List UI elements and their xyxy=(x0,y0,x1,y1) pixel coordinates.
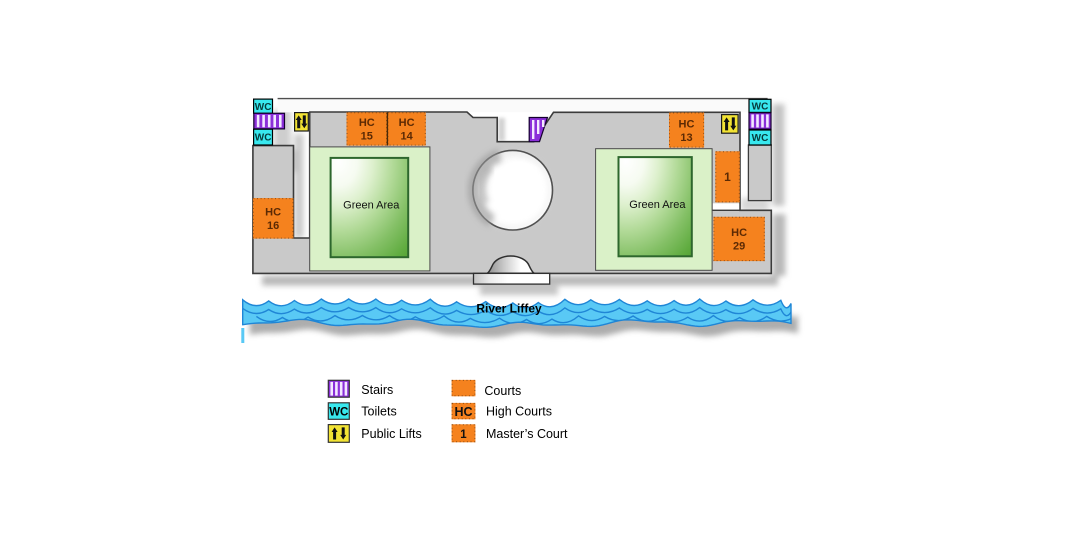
svg-text:14: 14 xyxy=(400,131,413,143)
svg-text:Master’s Court: Master’s Court xyxy=(486,427,568,441)
svg-text:1: 1 xyxy=(724,170,731,184)
svg-text:HC: HC xyxy=(359,117,375,129)
svg-text:HC: HC xyxy=(399,117,415,129)
svg-text:16: 16 xyxy=(267,220,279,232)
svg-text:1: 1 xyxy=(460,429,467,441)
svg-text:River Liffey: River Liffey xyxy=(476,302,542,316)
svg-text:WC: WC xyxy=(752,101,769,112)
svg-text:Green Area: Green Area xyxy=(629,199,686,211)
svg-text:15: 15 xyxy=(361,131,373,143)
svg-text:High Courts: High Courts xyxy=(486,404,552,418)
svg-text:Courts: Courts xyxy=(484,384,521,398)
svg-text:WC: WC xyxy=(329,407,348,419)
svg-text:WC: WC xyxy=(255,133,272,144)
svg-text:HC: HC xyxy=(679,118,695,130)
svg-text:13: 13 xyxy=(680,132,692,144)
svg-text:Stairs: Stairs xyxy=(361,383,393,397)
svg-text:WC: WC xyxy=(255,102,272,113)
svg-text:HC: HC xyxy=(731,227,747,239)
svg-text:HC: HC xyxy=(454,405,472,419)
svg-text:Toilets: Toilets xyxy=(361,405,396,419)
svg-text:29: 29 xyxy=(733,241,745,253)
svg-text:HC: HC xyxy=(265,207,281,219)
svg-text:Green Area: Green Area xyxy=(343,200,400,212)
svg-text:WC: WC xyxy=(752,133,769,144)
svg-text:Public Lifts: Public Lifts xyxy=(361,427,421,441)
